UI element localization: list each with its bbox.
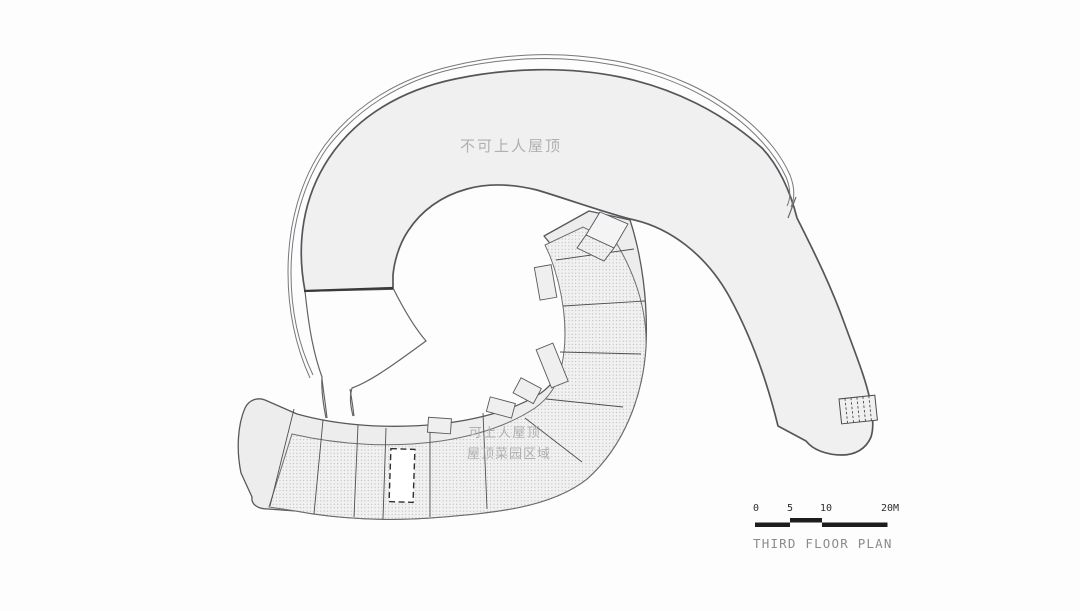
neck-walkway-lines — [322, 379, 354, 418]
stairs-symbol — [839, 395, 877, 424]
courtyard-funnel-edges — [305, 288, 426, 418]
scale-segment-low-right — [822, 523, 888, 528]
planter-notch — [427, 417, 451, 434]
scale-tick-0: 0 — [753, 503, 759, 514]
label-roof-garden-area: 屋顶菜园区域 — [467, 447, 551, 462]
label-non-accessible-roof: 不可上人屋顶 — [460, 137, 562, 155]
label-accessible-roof: 可上人屋顶 — [469, 426, 542, 441]
floor-plan-page: 不可上人屋顶 可上人屋顶 屋顶菜园区域 0 5 10 20M THIRD FLO… — [0, 0, 1080, 611]
scale-bar-segments — [755, 518, 888, 527]
floor-plan-canvas: 不可上人屋顶 可上人屋顶 屋顶菜园区域 0 5 10 20M THIRD FLO… — [0, 0, 1080, 611]
planter-notch — [534, 265, 556, 300]
funnel-right-edge — [350, 288, 426, 416]
scale-tick-20m: 20M — [881, 503, 899, 514]
scale-segment-high-mid — [790, 518, 822, 523]
scale-tick-5: 5 — [787, 503, 793, 514]
scale-tick-10: 10 — [820, 503, 832, 514]
scale-bar: 0 5 10 20M — [753, 503, 899, 527]
scale-segment-low-left — [755, 523, 790, 528]
stair-opening — [389, 449, 415, 503]
funnel-left-edge — [305, 291, 326, 418]
plan-title: THIRD FLOOR PLAN — [753, 536, 893, 551]
